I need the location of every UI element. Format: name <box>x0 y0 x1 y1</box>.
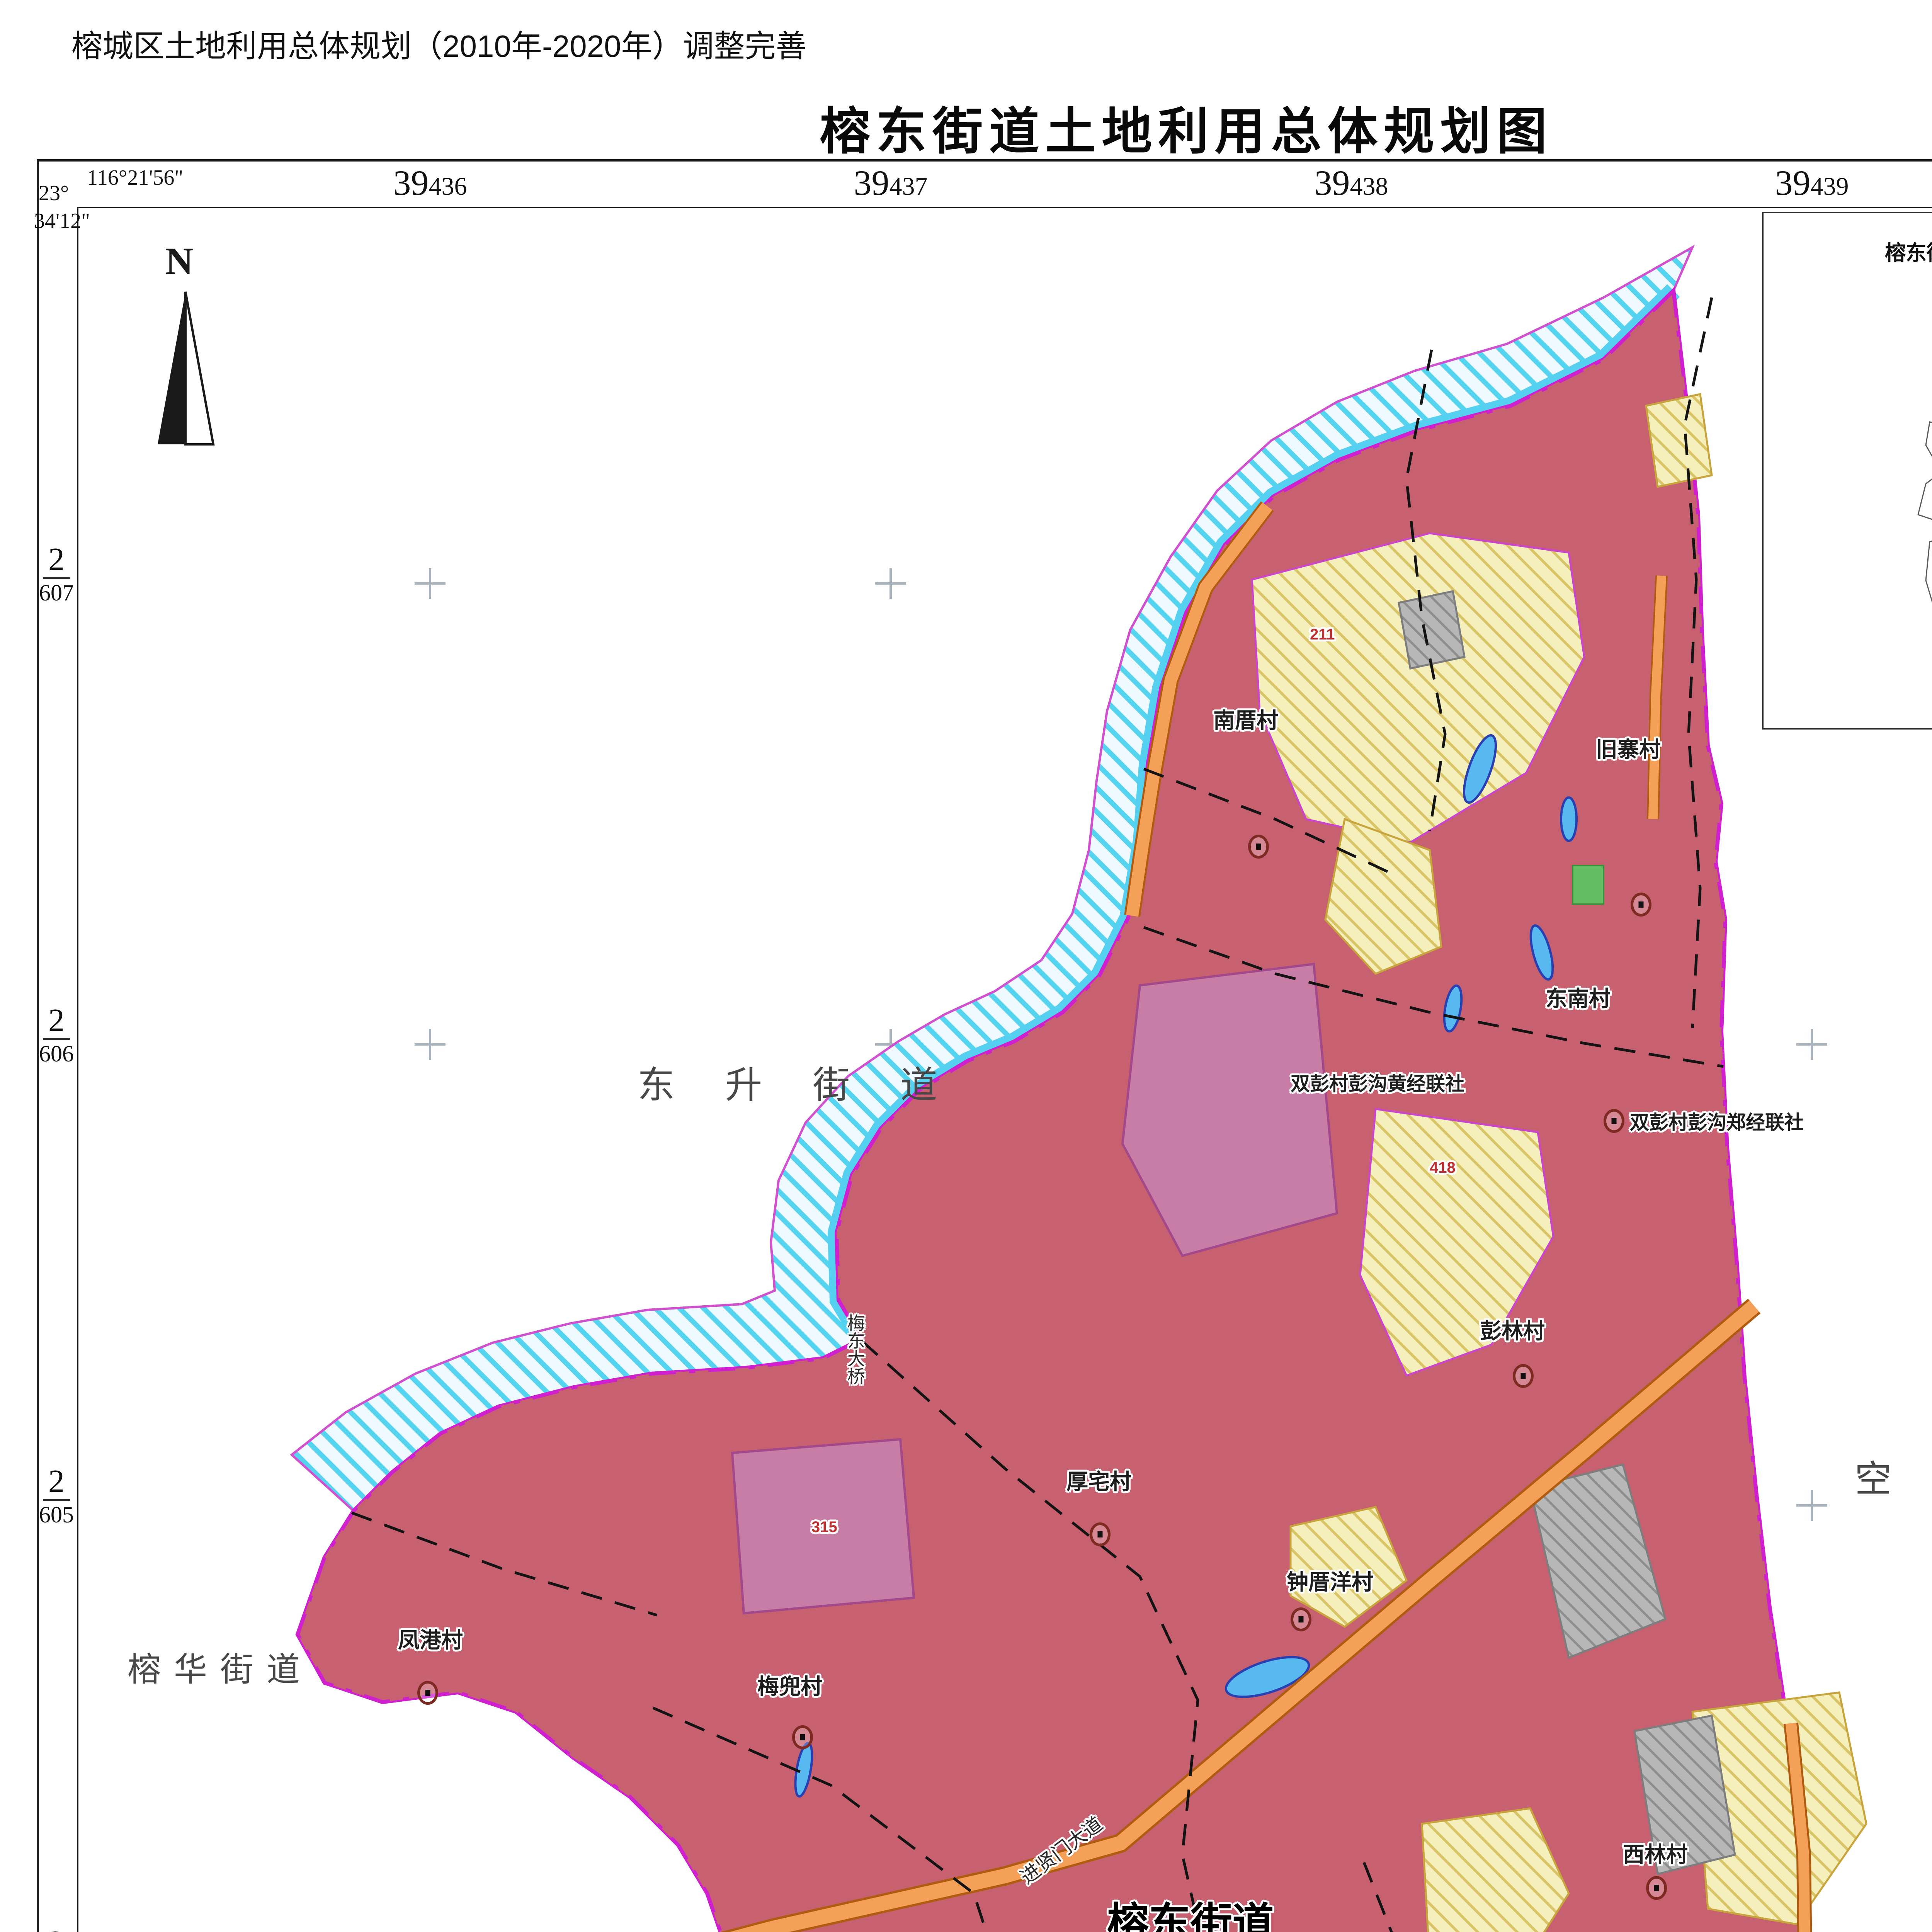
grid-label-left: 2606 <box>33 1005 80 1065</box>
north-label: N <box>165 239 193 283</box>
grid-value: 436 <box>429 172 467 201</box>
village-marker <box>1291 1607 1317 1631</box>
village-name: 旧寨村 <box>1596 732 1661 764</box>
grid-zone: 2 <box>33 1005 80 1036</box>
grid-value: 606 <box>33 1042 80 1065</box>
grid-label-top: 39438 <box>1286 162 1417 203</box>
village-name: 凤港村 <box>398 1623 463 1654</box>
landclass-code: 211 <box>1310 626 1335 643</box>
village-circle-icon <box>1090 1522 1111 1546</box>
village-label: 凤港村 <box>398 1623 463 1654</box>
grid-label-left: 2605 <box>33 1466 80 1526</box>
village-circle-icon <box>1291 1607 1311 1631</box>
village-label: 南厝村 <box>1213 703 1278 735</box>
village-circle-icon <box>1631 893 1651 917</box>
bridge-label: 梅东大桥 <box>842 1314 868 1385</box>
village-marker <box>792 1725 818 1749</box>
grid-zone: 39 <box>393 163 429 202</box>
grid-zone: 2 <box>33 1466 80 1497</box>
grid-label-top: 39437 <box>825 162 956 203</box>
village-marker <box>1090 1522 1116 1546</box>
village-circle-icon <box>417 1681 438 1705</box>
village-name: 南厝村 <box>1213 703 1278 735</box>
corner-lat-min-top-left: 34'12" <box>34 209 90 233</box>
village-name: 彭林村 <box>1480 1314 1545 1345</box>
neighbor-label-konggang: 空 港 经 济 区 <box>1855 1449 1932 1503</box>
village-circle-icon <box>1248 835 1269 859</box>
grid-zone: 2 <box>33 1927 80 1932</box>
village-label: 厚宅村 <box>1066 1464 1131 1496</box>
planning-map-page: 榕城区土地利用总体规划（2010年-2020年）调整完善 榕东街道土地利用总体规… <box>0 0 1932 1932</box>
subject-label: 榕东街道 <box>1107 1889 1274 1932</box>
village-circle-icon <box>1513 1364 1534 1388</box>
grid-zone: 39 <box>1775 163 1811 202</box>
village-marker <box>1646 1876 1672 1900</box>
village-marker <box>417 1681 444 1705</box>
grid-value: 438 <box>1350 172 1388 201</box>
grid-value: 605 <box>33 1503 80 1526</box>
village-name: 钟厝洋村 <box>1287 1565 1373 1596</box>
subject-star-icon: ★ <box>1070 1926 1112 1932</box>
grid-value: 437 <box>889 172 928 201</box>
grid-zone: 39 <box>854 163 889 202</box>
village-marker <box>1631 893 1657 917</box>
grid-value: 607 <box>33 581 80 604</box>
grid-label-top: 39439 <box>1746 162 1878 203</box>
grid-label-left: 2604 <box>33 1927 80 1932</box>
village-name: 双彭村彭沟郑经联社 <box>1630 1107 1804 1135</box>
village-marker <box>1248 835 1274 859</box>
village-label: 梅兜村 <box>757 1669 822 1701</box>
village-marker <box>1513 1364 1539 1388</box>
village-label: 旧寨村 <box>1596 732 1661 764</box>
village-label: 双彭村彭沟黄经联社 <box>1291 1068 1464 1096</box>
inner-neatline <box>77 207 1932 1932</box>
neighbor-label-ronghua: 榕华街道 <box>128 1642 313 1690</box>
grid-label-top: 39436 <box>364 162 496 203</box>
village-circle-icon <box>1646 1876 1667 1900</box>
grid-label-left: 2607 <box>33 544 80 604</box>
village-label: 钟厝洋村 <box>1287 1565 1373 1596</box>
corner-lat-deg-top-left: 23° <box>39 181 69 206</box>
inset-canvas <box>1764 213 1932 728</box>
village-name: 双彭村彭沟黄经联社 <box>1291 1068 1464 1096</box>
corner-lon-top-left: 116°21'56" <box>87 165 183 190</box>
village-name: 厚宅村 <box>1066 1464 1131 1496</box>
village-label: 东南村 <box>1546 981 1611 1013</box>
landclass-code: 418 <box>1430 1159 1456 1177</box>
village-label: 双彭村彭沟郑经联社 <box>1604 1107 1804 1135</box>
village-label: 西林村 <box>1623 1837 1688 1869</box>
grid-zone: 39 <box>1315 163 1350 202</box>
locator-inset: 榕东街道在榕城区位置示意图 东阳街道 东升街道 东兴街道 西马街道 榕华街道 中… <box>1762 212 1932 730</box>
village-label: 彭林村 <box>1480 1314 1545 1345</box>
village-circle-icon <box>792 1725 813 1749</box>
landclass-code: 315 <box>811 1519 837 1536</box>
village-name: 西林村 <box>1623 1837 1688 1869</box>
grid-zone: 2 <box>33 544 80 575</box>
grid-value: 439 <box>1811 172 1849 201</box>
village-name: 梅兜村 <box>757 1669 822 1701</box>
village-circle-icon <box>1604 1109 1624 1133</box>
neighbor-label-dongsheng: 东 升 街 道 <box>638 1055 957 1109</box>
village-name: 东南村 <box>1546 981 1611 1013</box>
